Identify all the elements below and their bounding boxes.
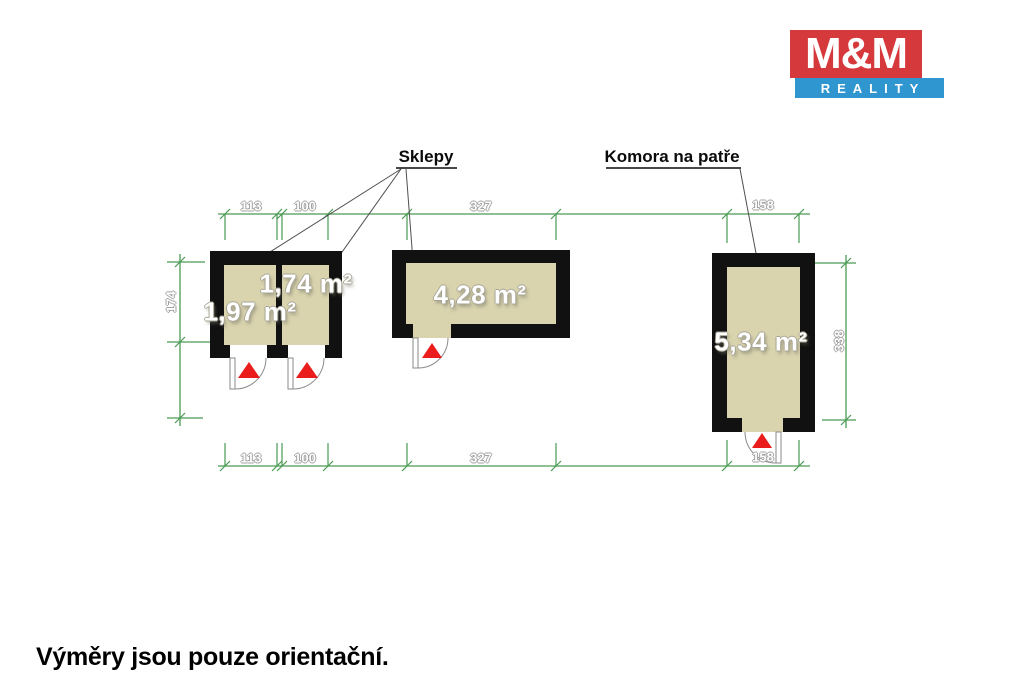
door-opening-komora — [742, 418, 783, 432]
floorplan-drawing — [0, 0, 1024, 683]
dim-bottom-4: 158 — [752, 450, 774, 465]
door-opening-sklep-3 — [413, 324, 451, 338]
area-label-sklep-3: 4,28 m² — [433, 280, 526, 311]
left-dimension-ticks — [167, 257, 210, 423]
area-label-sklep-1: 1,97 m² — [203, 297, 296, 328]
dim-left: 174 — [164, 291, 179, 313]
brand-logo-wordmark: REALITY — [795, 78, 944, 98]
door-opening-sklep-1 — [230, 345, 267, 358]
door-leaf-sklep-1 — [230, 358, 235, 389]
door-leaf-komora — [776, 432, 781, 463]
door-leaf-sklep-2 — [288, 358, 293, 389]
area-label-sklep-2: 1,74 m² — [259, 269, 352, 300]
door-triangle-sklep-1 — [238, 362, 260, 378]
dim-top-3: 327 — [470, 199, 492, 214]
sklepy-label: Sklepy — [399, 147, 454, 167]
door-opening-sklep-2 — [288, 345, 325, 358]
door-direction-triangles — [238, 343, 772, 448]
disclaimer-text: Výměry jsou pouze orientační. — [36, 643, 389, 672]
dim-top-4: 158 — [752, 198, 774, 213]
floorplan-canvas: Sklepy Komora na patře 1,97 m² 1,74 m² 4… — [0, 0, 1024, 683]
door-triangle-komora — [752, 433, 772, 448]
door-triangle-sklep-2 — [296, 362, 318, 378]
door-leaf-sklep-3 — [413, 338, 418, 368]
area-label-komora: 5,34 m² — [714, 327, 807, 358]
dim-top-2: 100 — [294, 199, 316, 214]
dim-right: 338 — [832, 330, 847, 352]
dim-bottom-1: 113 — [241, 451, 262, 466]
dim-bottom-2: 100 — [294, 451, 316, 466]
komora-label: Komora na patře — [604, 147, 739, 167]
brand-logo-mark: M&M — [790, 30, 922, 78]
door-triangle-sklep-3 — [422, 343, 442, 358]
dim-bottom-3: 327 — [470, 451, 492, 466]
dim-top-1: 113 — [241, 199, 262, 214]
